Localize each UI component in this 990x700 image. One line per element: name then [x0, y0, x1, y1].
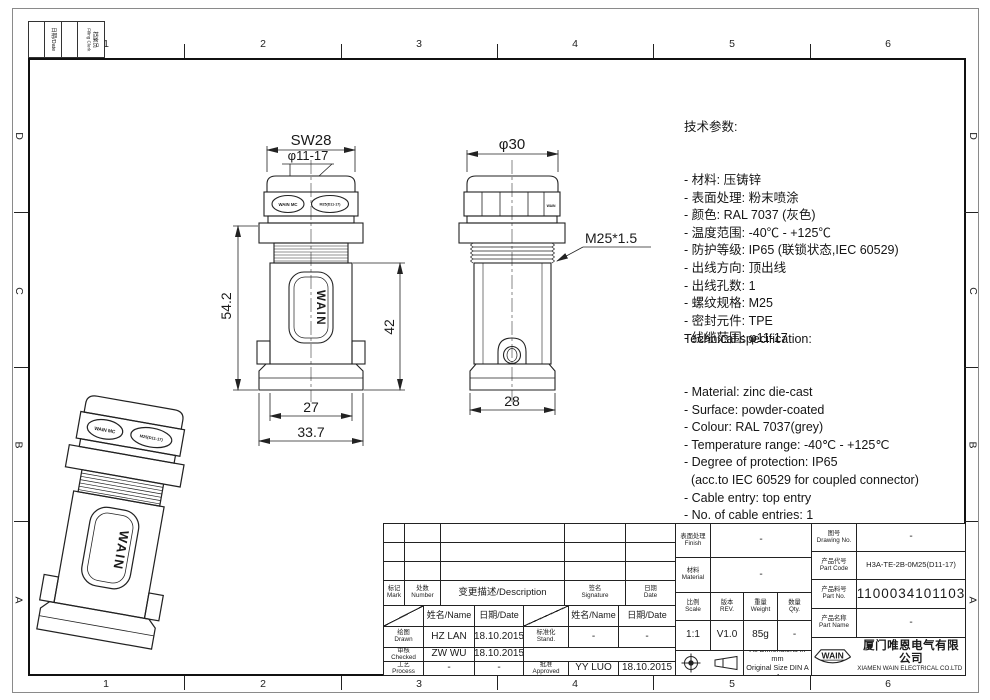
drawing-no-label-cell: 图号Drawing No. — [811, 523, 857, 552]
rev-signature-header: 签名Signature — [564, 580, 626, 606]
weight-value-cell: 85g — [743, 620, 778, 651]
view-isometric — [35, 392, 196, 649]
rev-cell — [564, 523, 626, 543]
drawing-sheet: 1 2 3 4 5 6 1 2 3 4 5 6 D C B A D C B A … — [0, 0, 990, 700]
drawn-role-cell: 绘图Drawn — [383, 626, 424, 648]
process-role-cell: 工艺Process — [383, 661, 424, 676]
rev-cell — [440, 561, 565, 581]
dimensions: SW28 φ11-17 54.2 42 27 33.7 φ30 — [218, 132, 651, 446]
side-nut-marking: WAIN — [547, 204, 556, 208]
part-name-label-cell: 产品名称Part Name — [811, 608, 857, 638]
rev-cell — [383, 561, 405, 581]
company-names: 厦门唯恩电气有限公司 XIAMEN WAIN ELECTRICAL CO.LTD — [857, 640, 965, 673]
dim-height-total: 54.2 — [218, 292, 234, 319]
rev-label-cell: 版本REV. — [710, 592, 744, 621]
part-code-value-cell: H3A-TE-2B-0M25(D11-17) — [856, 551, 966, 580]
dim-thread: M25*1.5 — [585, 230, 637, 246]
material-value-cell: - — [710, 557, 812, 593]
qty-value-cell: - — [777, 620, 812, 651]
rev-cell — [625, 542, 676, 562]
rev-value-cell: V1.0 — [710, 620, 744, 651]
part-name-value-cell: - — [856, 608, 966, 638]
wain-logo-text: WAIN — [822, 650, 844, 660]
company-name-en: XIAMEN WAIN ELECTRICAL CO.LTD — [857, 666, 962, 673]
rev-cell — [564, 561, 626, 581]
wain-logo: WAIN — [812, 645, 853, 669]
projection-symbols-cell — [675, 650, 744, 676]
approved-name-cell: YY LUO — [568, 661, 619, 676]
checked-role-cell: 审核Checked — [383, 647, 424, 662]
rev-description-header: 变更描述/Description — [440, 580, 565, 606]
drawing-no-value-cell: - — [856, 523, 966, 552]
rev-cell — [440, 542, 565, 562]
rev-cell — [404, 561, 441, 581]
rev-cell — [625, 523, 676, 543]
rev-cell — [564, 542, 626, 562]
company-name-zh: 厦门唯恩电气有限公司 — [857, 640, 965, 665]
date-header-cell: 日期/Date — [474, 605, 524, 627]
diagonal-cell — [523, 605, 569, 627]
title-block: 标记Mark 处数Number 变更描述/Description 签名Signa… — [383, 523, 966, 676]
rev-date-header: 日期Date — [625, 580, 676, 606]
checked-date-cell: 18.10.2015 — [474, 647, 524, 662]
company-cell: WAIN 厦门唯恩电气有限公司 XIAMEN WAIN ELECTRICAL C… — [811, 637, 966, 676]
rev-mark-header: 标记Mark — [383, 580, 405, 606]
dimension-note-cell: All Dimensions in mm Original Size DIN A… — [743, 650, 812, 676]
rev-cell — [440, 523, 565, 543]
date-header-cell: 日期/Date — [618, 605, 676, 627]
dim-width-flats: SW28 — [291, 132, 332, 149]
note-dimensions-mm: All Dimensions in mm — [744, 650, 811, 663]
rev-cell — [383, 523, 405, 543]
dim-side-base: 28 — [504, 393, 520, 409]
stand-role-cell: 标准化Stand. — [523, 626, 569, 648]
checked-empty-cell — [523, 647, 676, 662]
weight-label-cell: 重量Weight — [743, 592, 778, 621]
projection-symbols — [679, 652, 741, 674]
rev-cell — [383, 542, 405, 562]
drawn-name-cell: HZ LAN — [423, 626, 475, 648]
approved-date-cell: 18.10.2015 — [618, 661, 676, 676]
approved-role-cell: 批准Approved — [523, 661, 569, 676]
dim-width-base: 33.7 — [297, 424, 324, 440]
process-date-cell: - — [474, 661, 524, 676]
material-label-cell: 材料Material — [675, 557, 711, 593]
scale-value-cell: 1:1 — [675, 620, 711, 651]
dim-height-body: 42 — [381, 319, 397, 335]
checked-name-cell: ZW WU — [423, 647, 475, 662]
diagonal-cell — [383, 605, 424, 627]
dim-diameter: φ30 — [499, 136, 525, 153]
stand-date-cell: - — [618, 626, 676, 648]
part-no-label-cell: 产品料号Part No. — [811, 579, 857, 609]
rev-number-header: 处数Number — [404, 580, 441, 606]
stand-name-cell: - — [568, 626, 619, 648]
note-original-size: Original Size DIN A 4 — [744, 663, 811, 676]
rev-cell — [404, 523, 441, 543]
finish-value-cell: - — [710, 523, 812, 558]
name-header-cell: 姓名/Name — [423, 605, 475, 627]
rev-cell — [625, 561, 676, 581]
qty-label-cell: 数量Qty. — [777, 592, 812, 621]
finish-label-cell: 表面处理Finish — [675, 523, 711, 558]
dim-width-body: 27 — [303, 399, 319, 415]
name-header-cell: 姓名/Name — [568, 605, 619, 627]
part-code-label-cell: 产品代号Part Code — [811, 551, 857, 580]
dim-cable-range: φ11-17 — [288, 148, 329, 163]
rev-cell — [404, 542, 441, 562]
part-no-value-cell: 1100034101103 — [856, 579, 966, 609]
drawn-date-cell: 18.10.2015 — [474, 626, 524, 648]
scale-label-cell: 比例Scale — [675, 592, 711, 621]
process-name-cell: - — [423, 661, 475, 676]
